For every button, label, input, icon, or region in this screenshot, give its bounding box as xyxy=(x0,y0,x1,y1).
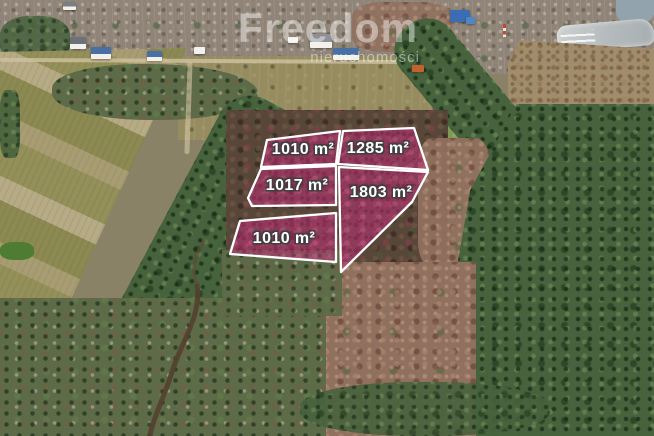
plot-area-label: 1803 m² xyxy=(350,184,412,202)
plot-area-label: 1017 m² xyxy=(266,177,328,195)
aerial-photo: 1010 m² 1285 m² 1017 m² 1803 m² 1010 m² … xyxy=(0,0,654,436)
plot-outline-4 xyxy=(339,167,428,272)
plot-area-label: 1010 m² xyxy=(253,230,315,248)
plot-area-label: 1285 m² xyxy=(347,140,409,158)
plot-boundaries xyxy=(0,0,654,436)
plot-area-label: 1010 m² xyxy=(272,141,334,159)
